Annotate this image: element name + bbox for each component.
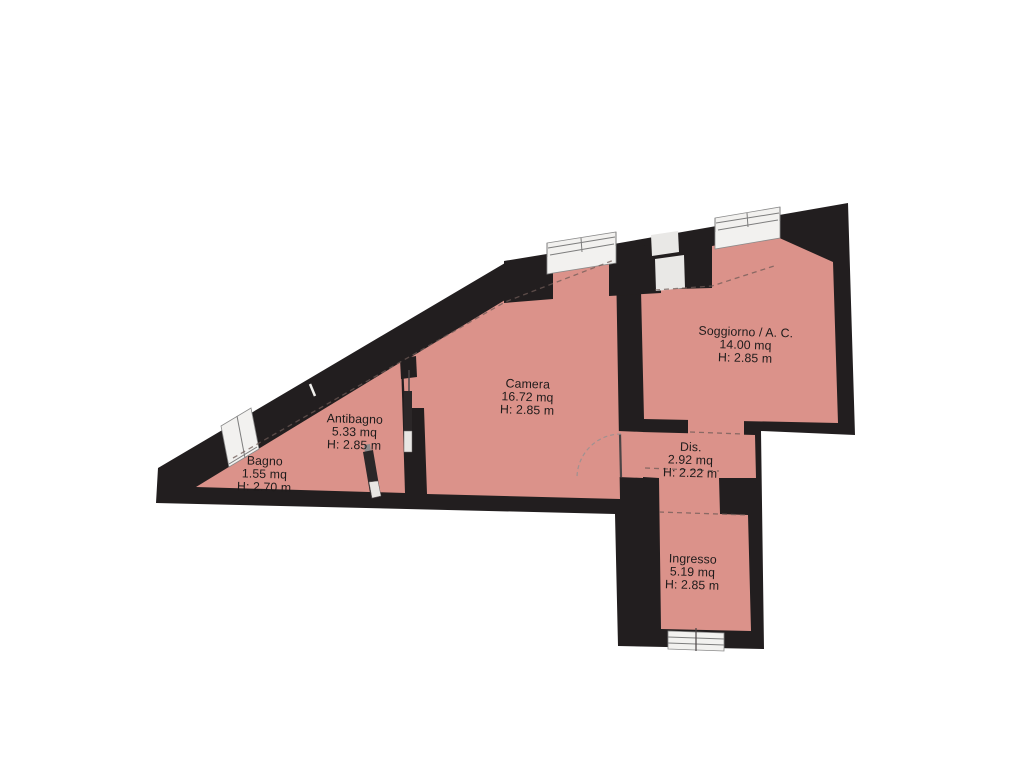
room-height: H: 2.85 m bbox=[698, 351, 793, 367]
room-area: 16.72 mq bbox=[500, 390, 555, 405]
floorplan-scan: Bagno 1.55 mq H: 2.70 m Antibagno 5.33 m… bbox=[0, 0, 1024, 768]
room-label-ingresso: Ingresso 5.19 mq H: 2.85 m bbox=[665, 552, 720, 592]
niche-lower bbox=[655, 255, 685, 291]
room-name: Ingresso bbox=[666, 552, 721, 567]
room-area: 5.33 mq bbox=[326, 425, 383, 440]
room-height: H: 2.85 m bbox=[326, 438, 383, 453]
room-name: Camera bbox=[501, 377, 556, 392]
room-height: H: 2.85 m bbox=[665, 578, 720, 593]
room-area: 1.55 mq bbox=[237, 467, 292, 482]
room-height: H: 2.85 m bbox=[500, 403, 555, 418]
room-label-soggiorno: Soggiorno / A. C. 14.00 mq H: 2.85 m bbox=[698, 325, 794, 367]
room-height: H: 2.70 m bbox=[237, 480, 292, 495]
room-label-antibagno: Antibagno 5.33 mq H: 2.85 m bbox=[326, 412, 383, 453]
pier-left-of-camera-window bbox=[504, 253, 553, 303]
room-area: 14.00 mq bbox=[698, 338, 793, 354]
room-label-dis: Dis. 2.92 mq H: 2.22 m bbox=[663, 440, 718, 480]
room-area: 2.92 mq bbox=[663, 453, 718, 468]
room-name: Dis. bbox=[664, 440, 719, 455]
room-name: Antibagno bbox=[326, 412, 383, 427]
room-area: 5.19 mq bbox=[665, 565, 720, 580]
room-label-bagno: Bagno 1.55 mq H: 2.70 m bbox=[237, 454, 292, 494]
room-name: Bagno bbox=[238, 454, 293, 469]
room-height: H: 2.22 m bbox=[663, 466, 718, 481]
room-label-camera: Camera 16.72 mq H: 2.85 m bbox=[500, 377, 555, 417]
room-name: Soggiorno / A. C. bbox=[698, 325, 793, 341]
niche-upper bbox=[651, 231, 679, 256]
